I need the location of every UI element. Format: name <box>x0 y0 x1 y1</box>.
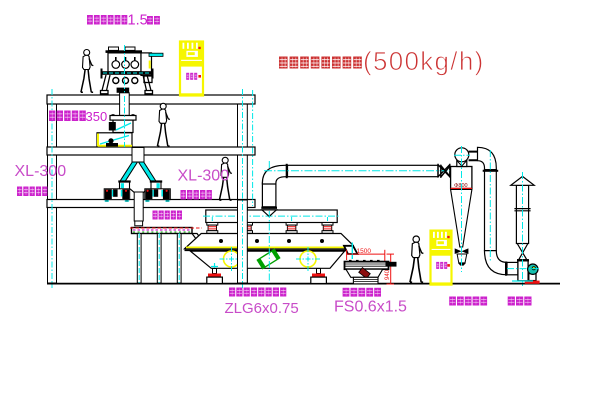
svg-text:1.5: 1.5 <box>128 13 148 29</box>
svg-text:940: 940 <box>385 269 391 280</box>
svg-text:XL-300: XL-300 <box>15 163 67 180</box>
svg-text:ZLG6x0.75: ZLG6x0.75 <box>225 300 299 317</box>
svg-text:(500kg/h): (500kg/h) <box>363 46 485 76</box>
svg-text:FS0.6x1.5: FS0.6x1.5 <box>334 299 407 316</box>
svg-text:XL-300: XL-300 <box>178 168 230 185</box>
svg-text:1500: 1500 <box>357 248 372 255</box>
svg-text:350: 350 <box>86 109 108 124</box>
